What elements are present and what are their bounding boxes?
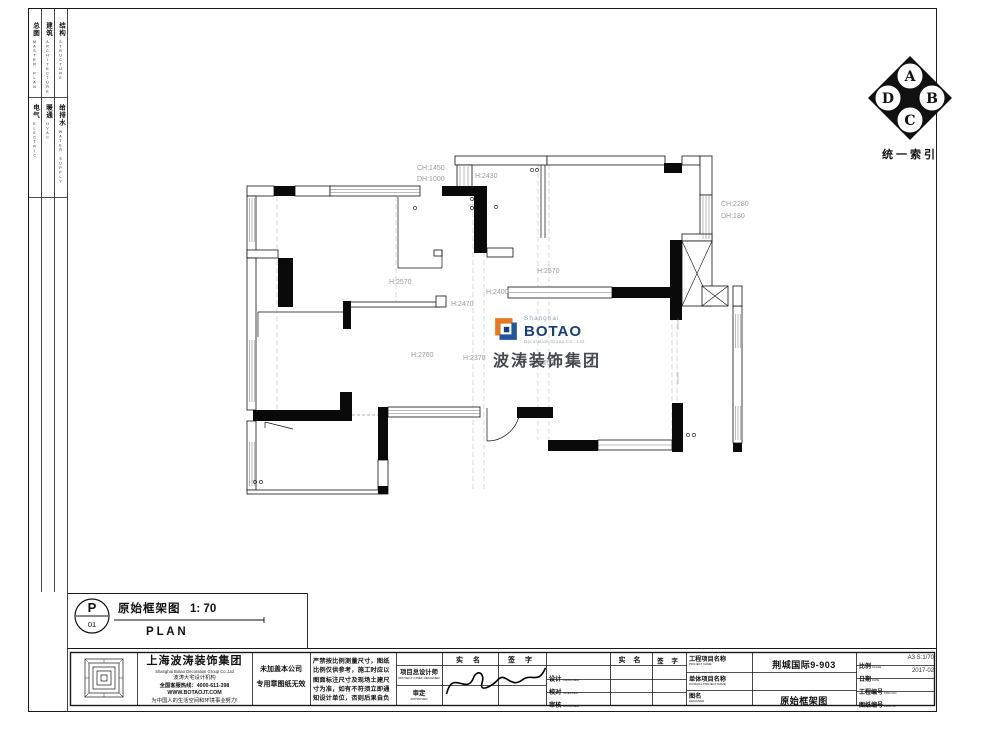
index-cell: 结构 STRUCTURE xyxy=(54,22,67,81)
floor-plan: CH:1450 DH:1000 H:2430 CH:2280 DH:180 H:… xyxy=(235,150,765,495)
role-chief-designer: 项目总设计师 PROJECT CHIEF DESIGNER xyxy=(397,669,441,680)
meta-dwgno-zh: 图纸编号 xyxy=(859,703,883,709)
meta-dwgno-en: DWG NO xyxy=(884,704,896,708)
index-cell: 电气 ELECTRIC xyxy=(28,104,41,158)
logo-botao-text: BOTAO xyxy=(524,324,586,339)
marker-letter: P xyxy=(88,600,97,615)
title-underline xyxy=(114,617,264,623)
disclaimer-line: 寸为准，如有不符须立即通 xyxy=(313,685,394,694)
dimension-label: H:2400 xyxy=(486,289,509,296)
elevator-shaft xyxy=(682,241,728,306)
unit-project-label: 单体项目名称 DIVIDUAL PROJECT NAME xyxy=(689,676,726,686)
project-name-label: 工程项目名称 PROJECT NAME xyxy=(689,656,726,666)
seal-notice-line1: 未加盖本公司 xyxy=(254,663,308,678)
unified-index-symbol: A B C D 统一索引 xyxy=(858,50,962,164)
index-cell: 总图 MASTER PLAN xyxy=(28,22,41,90)
company-info: 上海波涛装饰集团 Shanghai Botao Decoration Group… xyxy=(139,655,250,704)
plan-title-marker: P 01 原始框架图 1: 70 P L A N xyxy=(68,590,328,650)
index-cell-en: ELECTRIC xyxy=(33,122,37,158)
index-letter-d: D xyxy=(882,91,894,107)
index-cell-en: STRUCTURE xyxy=(59,40,63,81)
column-header-signature-2: 签 字 xyxy=(653,655,685,665)
logo-subtitle-text: Decoration Group Co., Ltd. xyxy=(524,340,586,344)
role-chief-en: PROJECT CHIEF DESIGNER xyxy=(397,677,441,681)
disclaimer-text: 严禁按比例测量尺寸，图纸 比例仅供参考，施工时应以 图面标注尺寸及现场土建尺 寸… xyxy=(313,657,394,703)
dimension-label: H:2760 xyxy=(411,352,434,359)
index-cell-zh: 电气 xyxy=(30,104,40,119)
company-org: 波涛大宅设计机构 xyxy=(139,675,250,682)
index-cell: 建筑 ARCHITECTURE xyxy=(41,22,54,94)
dimension-label: H:2570 xyxy=(537,268,560,275)
index-cell-zh: 建筑 xyxy=(43,22,53,37)
dimension-label: H:2430 xyxy=(475,173,498,180)
index-cell-zh: 结构 xyxy=(56,22,66,37)
plan-title-en: P L A N xyxy=(146,626,186,638)
chief-designer-signature xyxy=(438,660,553,704)
role-approved: 审定 APPROVED xyxy=(397,690,441,701)
role-examined: 审核EXAMINED xyxy=(549,695,579,711)
company-website: WWW.BOTAOJT.COM xyxy=(139,690,250,697)
meta-scale-value: A3 S:1/70 xyxy=(908,655,934,661)
disclaimer-line: 知设计单位，否则后果自负 xyxy=(313,694,394,703)
dimension-label: H:2370 xyxy=(463,355,486,362)
disclaimer-line: 比例仅供参考，施工时应以 xyxy=(313,666,394,675)
company-name: 上海波涛装饰集团 xyxy=(139,655,250,669)
index-cell-zh: 暖通 xyxy=(43,104,53,119)
logo-chinese-text: 波涛装饰集团 xyxy=(493,347,601,371)
dimension-label: H:2570 xyxy=(389,279,412,286)
seal-notice: 未加盖本公司 专用章图纸无效 xyxy=(254,663,308,692)
index-cell-en: WATER SUPPLY xyxy=(59,130,63,184)
index-letter-c: C xyxy=(904,113,915,129)
index-cell-en: ARCHITECTURE xyxy=(46,40,50,94)
drawing-name-value: 原始框架图 xyxy=(754,694,854,707)
dimension-label: CH:1450 xyxy=(417,165,445,172)
index-cell: 给排水 WATER SUPPLY xyxy=(54,104,67,184)
company-hotline: 全国客服热线：4000-611-398 xyxy=(139,683,250,690)
index-cell-en: HVAC xyxy=(46,122,50,140)
disclaimer-line: 图面标注尺寸及现场土建尺 xyxy=(313,676,394,685)
unified-index-label: 统一索引 xyxy=(882,147,938,161)
role-examined-zh: 审核 xyxy=(549,702,561,709)
dimension-label: DH:1000 xyxy=(417,176,445,183)
disclaimer-line: 严禁按比例测量尺寸，图纸 xyxy=(313,657,394,666)
botao-watermark: Shanghai BOTAO Decoration Group Co., Ltd… xyxy=(493,316,601,371)
seal-notice-line2: 专用章图纸无效 xyxy=(254,678,308,693)
plan-scale: 1: 70 xyxy=(190,603,216,615)
index-cell: 暖通 HVAC xyxy=(41,104,54,140)
index-cell-zh: 总图 xyxy=(30,22,40,37)
index-cell-zh: 给排水 xyxy=(56,104,66,127)
index-letter-a: A xyxy=(904,69,917,85)
drawing-index-strip: 总图 MASTER PLAN 建筑 ARCHITECTURE 结构 STRUCT… xyxy=(28,8,67,592)
index-letter-b: B xyxy=(926,91,938,107)
marker-number: 01 xyxy=(88,620,96,629)
project-name-value: 荆城国际9-903 xyxy=(754,658,854,671)
company-name-en: Shanghai Botao Decoration Group Co.,Ltd xyxy=(139,669,250,674)
plan-title-zh: 原始框架图 xyxy=(118,601,181,615)
meta-dwgno-row: 图纸编号DWG NO xyxy=(859,694,934,712)
company-slogan: 为中国人的生活空间和环境事业努力! xyxy=(139,698,250,705)
drawing-name-label-en: DESIGNER xyxy=(689,700,704,703)
botao-logo-icon xyxy=(493,316,519,342)
drawing-sheet: 总图 MASTER PLAN 建筑 ARCHITECTURE 结构 STRUCT… xyxy=(0,0,1000,729)
meta-date-value: 2017-02 xyxy=(912,668,934,674)
unit-project-label-en: DIVIDUAL PROJECT NAME xyxy=(689,683,726,686)
role-approved-en: APPROVED xyxy=(397,698,441,702)
index-cell-en: MASTER PLAN xyxy=(33,40,37,90)
dimension-label: DH:180 xyxy=(721,213,745,220)
role-examined-en: EXAMINED xyxy=(563,704,579,708)
project-name-label-en: PROJECT NAME xyxy=(689,663,726,666)
dimension-label: CH:2280 xyxy=(721,201,749,208)
column-header-real-name-2: 实 名 xyxy=(612,655,650,665)
logo-shanghai-text: Shanghai xyxy=(524,316,586,323)
dimension-label: H:2470 xyxy=(451,301,474,308)
drawing-name-label: 图名 DESIGNER xyxy=(689,693,704,703)
company-logo xyxy=(84,658,124,698)
